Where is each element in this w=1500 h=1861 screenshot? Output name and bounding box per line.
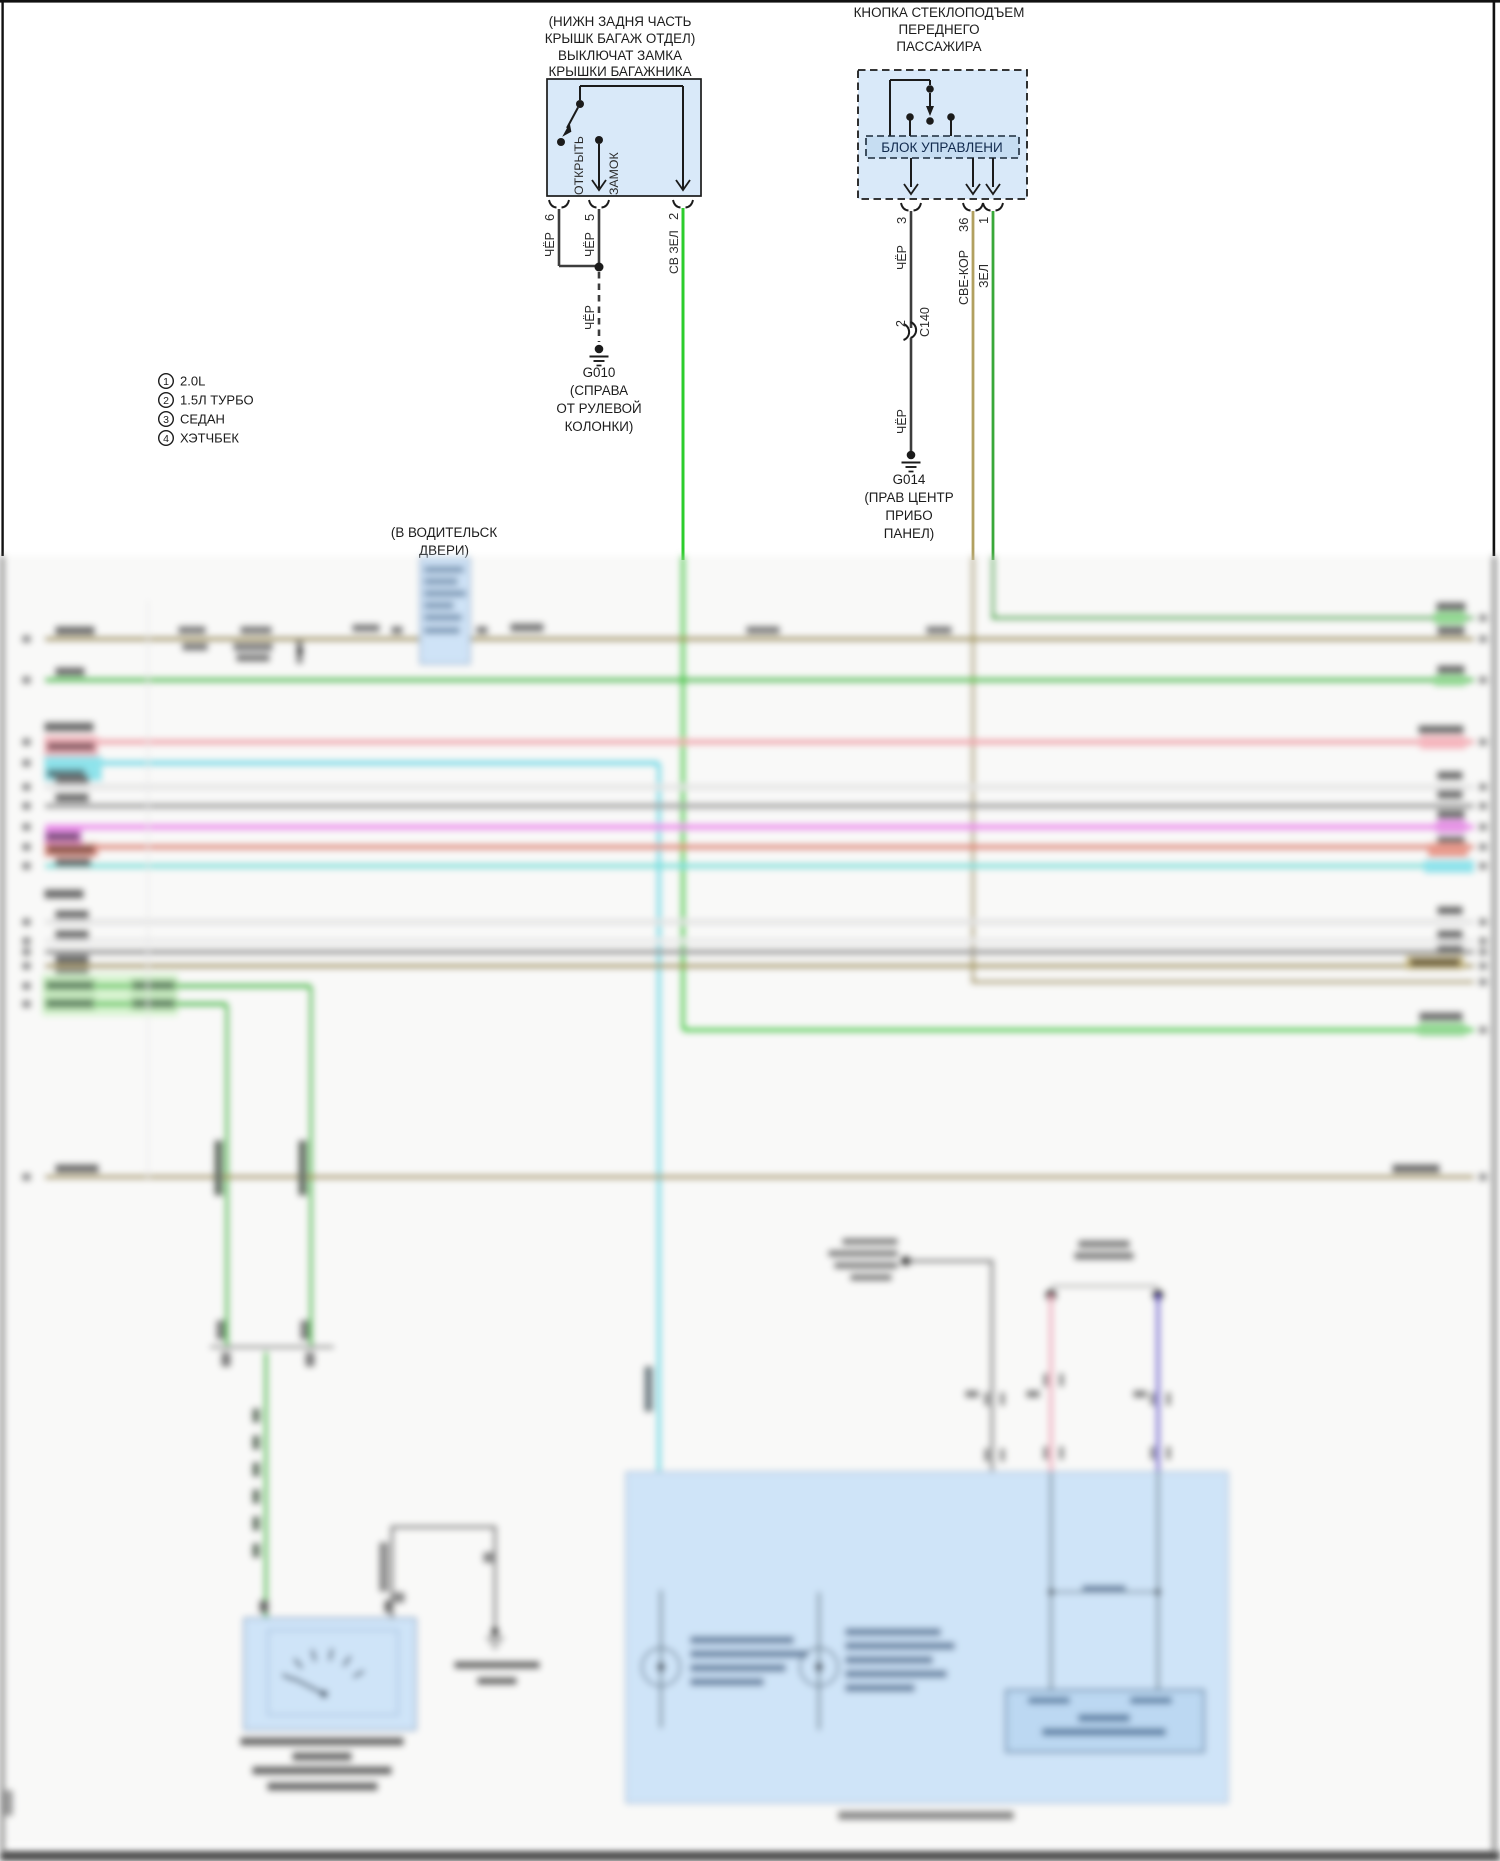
svg-text:3: 3 bbox=[163, 414, 169, 426]
svg-text:ХЭТЧБЕК: ХЭТЧБЕК bbox=[180, 431, 239, 446]
svg-text:ПРИБО: ПРИБО bbox=[885, 508, 932, 523]
svg-text:G010: G010 bbox=[583, 365, 616, 380]
svg-text:ЧЁР: ЧЁР bbox=[543, 232, 557, 257]
svg-text:(ПРАВ ЦЕНТР: (ПРАВ ЦЕНТР bbox=[864, 490, 953, 505]
svg-text:1: 1 bbox=[163, 376, 169, 388]
svg-text:СВ ЗЕЛ: СВ ЗЕЛ bbox=[667, 230, 681, 274]
svg-text:ОТКРЫТЬ: ОТКРЫТЬ bbox=[572, 136, 586, 195]
svg-text:ЧЁР: ЧЁР bbox=[583, 305, 597, 330]
svg-text:2: 2 bbox=[894, 320, 908, 327]
svg-text:3: 3 bbox=[894, 217, 909, 224]
svg-text:БЛОК УПРАВЛЕНИ: БЛОК УПРАВЛЕНИ bbox=[881, 140, 1002, 155]
svg-text:ВЫКЛЮЧАТ ЗАМКА: ВЫКЛЮЧАТ ЗАМКА bbox=[558, 48, 682, 63]
svg-text:КРЫШКИ БАГАЖНИКА: КРЫШКИ БАГАЖНИКА bbox=[548, 64, 691, 79]
svg-text:(НИЖН ЗАДНЯ ЧАСТЬ: (НИЖН ЗАДНЯ ЧАСТЬ bbox=[549, 14, 692, 29]
svg-text:ДВЕРИ): ДВЕРИ) bbox=[419, 543, 469, 558]
svg-text:6: 6 bbox=[542, 214, 557, 221]
svg-text:(СПРАВА: (СПРАВА bbox=[570, 383, 628, 398]
svg-text:C140: C140 bbox=[918, 307, 932, 337]
svg-text:2.0L: 2.0L bbox=[180, 374, 205, 389]
svg-text:2: 2 bbox=[666, 213, 681, 220]
svg-text:КНОПКА СТЕКЛОПОДЪЕМ: КНОПКА СТЕКЛОПОДЪЕМ bbox=[854, 5, 1025, 20]
svg-text:ПЕРЕДНЕГО: ПЕРЕДНЕГО bbox=[898, 22, 979, 37]
svg-text:ОТ РУЛЕВОЙ: ОТ РУЛЕВОЙ bbox=[556, 401, 641, 416]
svg-text:5: 5 bbox=[582, 214, 597, 221]
svg-text:ЧЁР: ЧЁР bbox=[895, 245, 909, 270]
svg-text:КРЫШК БАГАЖ ОТДЕЛ): КРЫШК БАГАЖ ОТДЕЛ) bbox=[545, 31, 696, 46]
svg-text:4: 4 bbox=[163, 433, 169, 445]
svg-text:СЕДАН: СЕДАН bbox=[180, 412, 225, 427]
svg-text:1.5Л ТУРБО: 1.5Л ТУРБО bbox=[180, 393, 254, 408]
svg-text:ПАНЕЛ): ПАНЕЛ) bbox=[884, 526, 934, 541]
svg-text:ЧЁР: ЧЁР bbox=[895, 409, 909, 434]
svg-text:(В ВОДИТЕЛЬСК: (В ВОДИТЕЛЬСК bbox=[391, 525, 497, 540]
svg-text:ЧЁР: ЧЁР bbox=[583, 232, 597, 257]
svg-text:1: 1 bbox=[976, 217, 991, 224]
svg-text:G014: G014 bbox=[893, 472, 926, 487]
svg-text:ЗЕЛ: ЗЕЛ bbox=[977, 264, 991, 288]
svg-text:КОЛОНКИ): КОЛОНКИ) bbox=[565, 419, 634, 434]
svg-text:36: 36 bbox=[956, 218, 971, 232]
svg-text:2: 2 bbox=[163, 395, 169, 407]
svg-text:ПАССАЖИРА: ПАССАЖИРА bbox=[896, 39, 981, 54]
svg-text:ЗАМОК: ЗАМОК bbox=[607, 152, 621, 195]
svg-text:СВЕ-КОР: СВЕ-КОР bbox=[957, 250, 971, 305]
